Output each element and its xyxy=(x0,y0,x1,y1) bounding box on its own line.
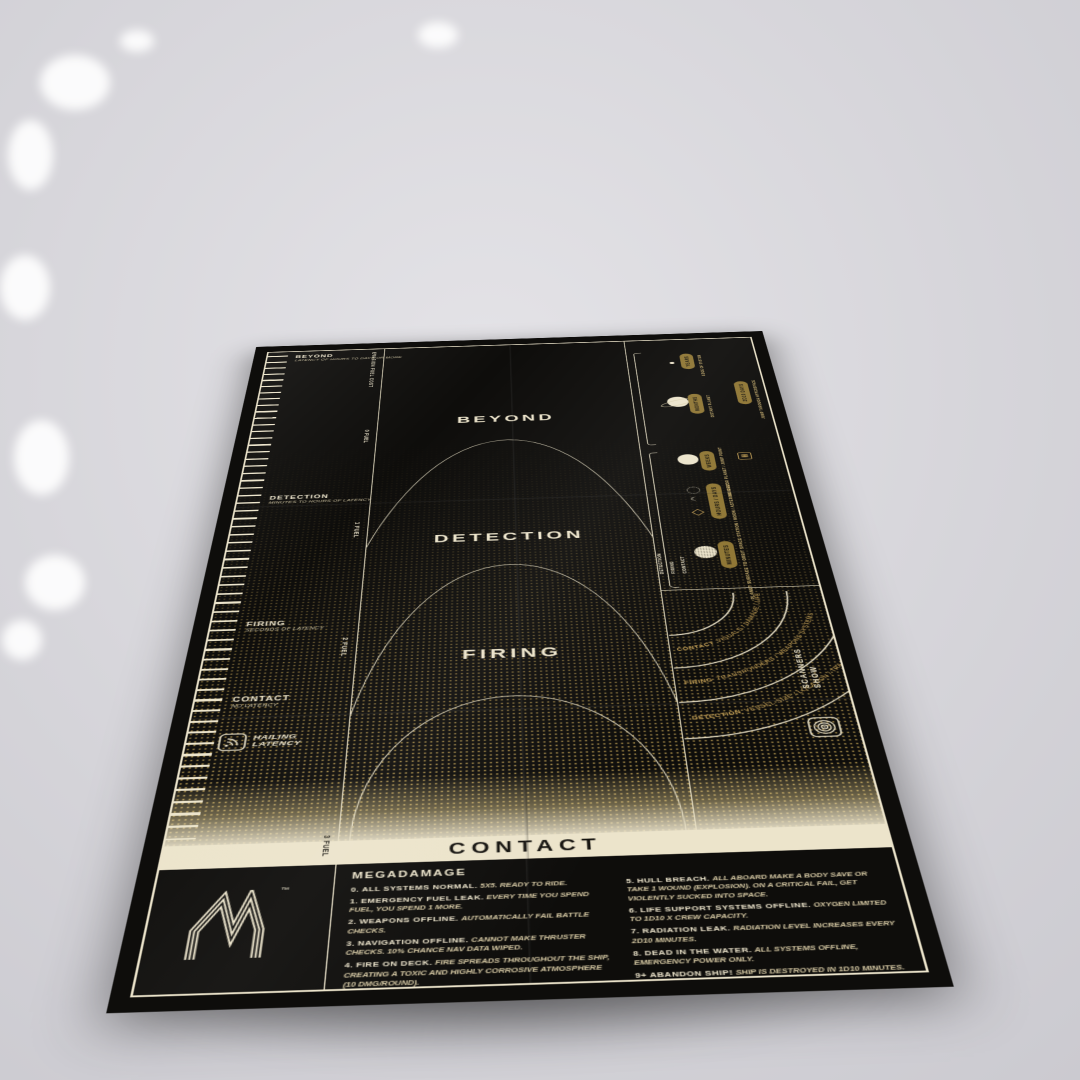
background-artifact xyxy=(0,255,50,320)
background-artifact xyxy=(120,30,154,52)
poster-inner: BEYOND LATENCY OF HOURS TO DAYS OR MORE … xyxy=(130,337,929,998)
poster: BEYOND LATENCY OF HOURS TO DAYS OR MORE … xyxy=(106,331,954,1013)
background-artifact xyxy=(8,120,53,190)
scanner-target-icon xyxy=(806,716,843,737)
fuel-stop-1: 1 FUEL xyxy=(352,522,362,538)
fuel-stop-2: 2 FUEL xyxy=(339,637,350,656)
background-artifact xyxy=(2,620,42,660)
megadamage-column-left: 0. ALL SYSTEMS NORMAL. 5X5. READY TO RID… xyxy=(342,878,618,994)
ruler-zone-contact: CONTACT NO LATENCY xyxy=(231,695,291,709)
background-artifact xyxy=(40,55,110,110)
megadamage-section: ™ MEGADAMAGE 0. ALL SYSTEMS NORMAL. 5X5.… xyxy=(133,847,926,995)
fuel-stop-0: 0 FUEL xyxy=(362,430,371,443)
edge-of-system-dot-icon xyxy=(669,362,674,364)
logo-box: ™ xyxy=(133,865,337,996)
hailing-latency: HAILING LATENCY xyxy=(217,731,303,751)
trademark-symbol: ™ xyxy=(280,887,289,893)
fan-text-contact: CONTACTVISUALS / DAMAGE / LIFESIGNS xyxy=(661,589,774,653)
mothership-logo xyxy=(173,889,278,968)
background-artifact xyxy=(14,420,69,495)
megadamage-text: MEGADAMAGE 0. ALL SYSTEMS NORMAL. 5X5. R… xyxy=(325,847,926,989)
megadamage-item: 4. FIRE ON DECK. FIRE SPREADS THROUGHOUT… xyxy=(343,953,618,990)
zone-title-beyond: BEYOND xyxy=(377,409,635,427)
jump-point-stamp-icon: ▦ xyxy=(737,452,752,459)
hailing-latency-label: HAILING LATENCY xyxy=(252,733,303,748)
scanners-fan: CONTACTVISUALS / DAMAGE / LIFESIGNS FIRI… xyxy=(661,589,885,830)
svg-text:CONTACTVISUALS / DAMAGE / LIFE: CONTACTVISUALS / DAMAGE / LIFESIGNS xyxy=(661,589,774,653)
hailing-signal-icon xyxy=(217,733,248,751)
moon-icon: ☾ xyxy=(690,497,700,502)
megadamage-item: 5. HULL BREACH. ALL ABOARD MAKE A BODY S… xyxy=(626,869,891,903)
megadamage-column-right: 5. HULL BREACH. ALL ABOARD MAKE A BODY S… xyxy=(626,869,912,984)
background-artifact xyxy=(418,22,458,48)
background-artifact xyxy=(25,555,85,610)
